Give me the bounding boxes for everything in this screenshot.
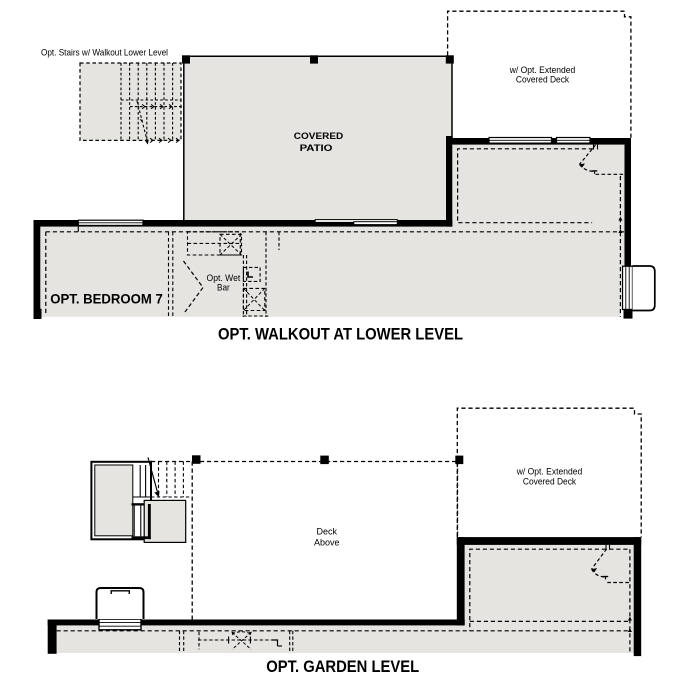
svg-text:PATIO: PATIO xyxy=(300,143,333,154)
svg-text:Above: Above xyxy=(314,537,340,547)
svg-text:Deck: Deck xyxy=(317,527,338,537)
svg-text:Bar: Bar xyxy=(217,283,230,293)
svg-text:Opt. Wet: Opt. Wet xyxy=(207,273,241,283)
svg-text:OPT. BEDROOM 7: OPT. BEDROOM 7 xyxy=(50,291,163,307)
svg-text:OPT. GARDEN LEVEL: OPT. GARDEN LEVEL xyxy=(266,658,419,676)
svg-text:Covered Deck: Covered Deck xyxy=(516,74,569,85)
svg-text:OPT. WALKOUT AT LOWER LEVEL: OPT. WALKOUT AT LOWER LEVEL xyxy=(218,326,463,344)
svg-text:COVERED: COVERED xyxy=(294,131,343,142)
svg-text:Opt. Stairs w/ Walkout Lower L: Opt. Stairs w/ Walkout Lower Level xyxy=(41,48,168,58)
svg-text:Covered Deck: Covered Deck xyxy=(523,476,576,487)
